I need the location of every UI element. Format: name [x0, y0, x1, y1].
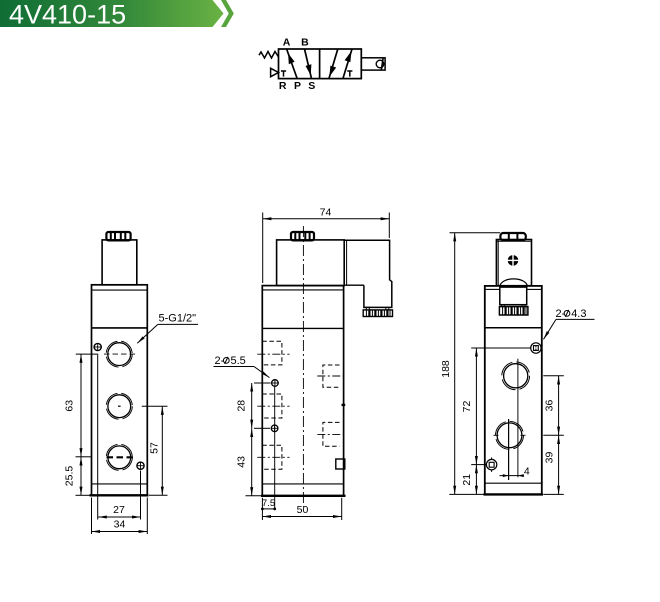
svg-text:S: S: [308, 80, 315, 92]
svg-text:74: 74: [320, 207, 332, 219]
svg-text:21: 21: [461, 474, 473, 486]
svg-text:B: B: [301, 37, 309, 49]
svg-text:4V410-15: 4V410-15: [9, 0, 126, 30]
svg-text:5-G1/2": 5-G1/2": [159, 312, 197, 324]
svg-text:5.5: 5.5: [231, 355, 246, 367]
svg-text:4.3: 4.3: [571, 308, 586, 320]
svg-text:188: 188: [440, 360, 452, 378]
svg-text:50: 50: [297, 504, 309, 516]
svg-text:A: A: [283, 37, 291, 49]
svg-text:39: 39: [544, 452, 556, 464]
svg-text:7.5: 7.5: [262, 498, 275, 509]
svg-text:28: 28: [235, 400, 247, 412]
svg-text:63: 63: [63, 400, 75, 412]
svg-text:4: 4: [524, 465, 530, 477]
svg-text:25.5: 25.5: [63, 466, 75, 487]
svg-text:P: P: [294, 80, 301, 92]
svg-text:34: 34: [114, 519, 126, 531]
svg-text:36: 36: [544, 400, 556, 412]
svg-text:R: R: [279, 80, 287, 92]
svg-text:57: 57: [149, 442, 161, 454]
svg-text:43: 43: [235, 456, 247, 468]
svg-text:72: 72: [461, 401, 473, 413]
svg-text:27: 27: [113, 504, 125, 516]
